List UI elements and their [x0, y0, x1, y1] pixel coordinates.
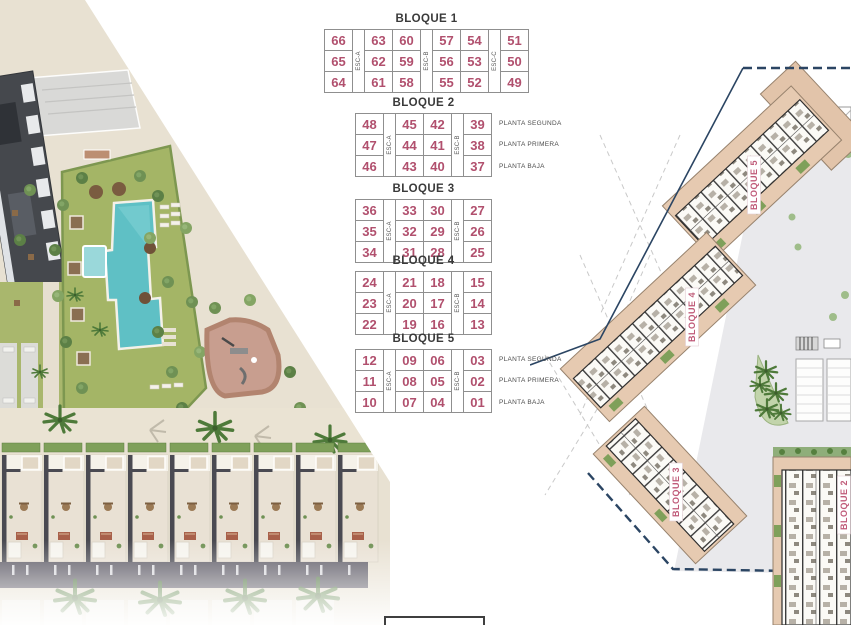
unit-number-cell: 61 — [365, 72, 393, 93]
unit-number-cell: 59 — [393, 51, 421, 72]
staircase-label: ESC-B — [455, 221, 461, 240]
unit-number-cell: 04 — [424, 392, 452, 413]
staircase-column: ESC-B — [452, 350, 464, 413]
unit-number-cell: 26 — [464, 221, 492, 242]
unit-number-cell: 32 — [396, 221, 424, 242]
staircase-column: ESC-B — [452, 200, 464, 263]
unit-number-cell: 11 — [356, 371, 384, 392]
staircase-label: ESC-A — [356, 51, 362, 70]
bloque-3-label: BLOQUE 3 — [670, 463, 683, 521]
unit-number-cell: 56 — [433, 51, 461, 72]
bloque-5-section: BLOQUE 5 12ESC-A0906ESC-B031108050210070… — [355, 333, 492, 413]
unit-number-cell: 13 — [464, 314, 492, 335]
bloque-2-table: 48ESC-A4542ESC-B394744413846434037 — [355, 113, 492, 177]
staircase-column: ESC-A — [384, 114, 396, 177]
unit-number-cell: 39 — [464, 114, 492, 135]
unit-number-cell: 52 — [461, 72, 489, 93]
bloque-title: BLOQUE 5 — [355, 333, 492, 346]
bloque-title: BLOQUE 3 — [355, 183, 492, 196]
townhouse-hedges — [2, 443, 376, 452]
site-plan-illustration: BLOQUE 5 BLOQUE 4 BLOQUE 3 BLOQUE 2 — [530, 55, 851, 625]
staircase-label: ESC-B — [424, 51, 430, 70]
page: BLOQUE 5 BLOQUE 4 BLOQUE 3 BLOQUE 2 BLOQ… — [0, 0, 851, 625]
bloque-5-table: 12ESC-A0906ESC-B031108050210070401 — [355, 349, 492, 413]
unit-number-cell: 03 — [464, 350, 492, 371]
unit-number-cell: 54 — [461, 30, 489, 51]
unit-number-cell: 40 — [424, 156, 452, 177]
unit-number-cell: 15 — [464, 272, 492, 293]
staircase-column: ESC-B — [452, 272, 464, 335]
staircase-column: ESC-A — [353, 30, 365, 93]
unit-number-cell: 46 — [356, 156, 384, 177]
unit-number-cell: 10 — [356, 392, 384, 413]
staircase-label: ESC-B — [455, 371, 461, 390]
unit-number-cell: 44 — [396, 135, 424, 156]
unit-number-cell: 51 — [501, 30, 529, 51]
unit-number-cell: 43 — [396, 156, 424, 177]
staircase-label: ESC-A — [387, 135, 393, 154]
unit-number-cell: 12 — [356, 350, 384, 371]
unit-number-cell: 14 — [464, 293, 492, 314]
unit-number-cell: 65 — [325, 51, 353, 72]
bloque-1-section: BLOQUE 1 66ESC-A6360ESC-B5754ESC-C516562… — [324, 13, 529, 93]
unit-number-cell: 55 — [433, 72, 461, 93]
unit-number-cell: 09 — [396, 350, 424, 371]
staircase-label: ESC-A — [387, 371, 393, 390]
staircase-column: ESC-A — [384, 350, 396, 413]
unit-number-cell: 58 — [393, 72, 421, 93]
cutoff-table-box — [384, 616, 485, 625]
bloque-4-table: 24ESC-A2118ESC-B152320171422191613 — [355, 271, 492, 335]
bloque-title: BLOQUE 4 — [355, 255, 492, 268]
bloque-2-section: BLOQUE 2 48ESC-A4542ESC-B394744413846434… — [355, 97, 492, 177]
unit-number-cell: 20 — [396, 293, 424, 314]
bloque-2-label: BLOQUE 2 — [838, 476, 851, 534]
canopy-roof — [28, 70, 140, 136]
playground — [207, 320, 279, 396]
staircase-column: ESC-A — [384, 200, 396, 263]
svg-text:BLOQUE 2: BLOQUE 2 — [839, 480, 849, 530]
unit-number-cell: 07 — [396, 392, 424, 413]
staircase-column: ESC-B — [421, 30, 433, 93]
unit-number-cell: 23 — [356, 293, 384, 314]
staircase-column: ESC-A — [384, 272, 396, 335]
unit-number-cell: 53 — [461, 51, 489, 72]
svg-text:BLOQUE 5: BLOQUE 5 — [749, 160, 759, 210]
unit-number-cell: 41 — [424, 135, 452, 156]
unit-number-cell: 33 — [396, 200, 424, 221]
unit-number-cell: 60 — [393, 30, 421, 51]
unit-number-cell: 47 — [356, 135, 384, 156]
bloque-5-label: BLOQUE 5 — [748, 156, 761, 214]
planta-label: PLANTA SEGUNDA — [499, 113, 562, 134]
bloque-title: BLOQUE 2 — [355, 97, 492, 110]
staircase-label: ESC-A — [387, 221, 393, 240]
bloque-3-table: 36ESC-A3330ESC-B273532292634312825 — [355, 199, 492, 263]
staircase-label: ESC-C — [492, 51, 498, 71]
unit-number-cell: 45 — [396, 114, 424, 135]
unit-number-cell: 30 — [424, 200, 452, 221]
unit-number-cell: 05 — [424, 371, 452, 392]
planta-label: PLANTA PRIMERA — [499, 134, 562, 155]
unit-number-cell: 50 — [501, 51, 529, 72]
unit-number-cell: 18 — [424, 272, 452, 293]
unit-number-cell: 06 — [424, 350, 452, 371]
bottom-fade — [0, 540, 400, 625]
staircase-label: ESC-B — [455, 293, 461, 312]
unit-number-cell: 24 — [356, 272, 384, 293]
unit-number-cell: 27 — [464, 200, 492, 221]
unit-number-cell: 36 — [356, 200, 384, 221]
unit-number-cell: 38 — [464, 135, 492, 156]
unit-number-cell: 21 — [396, 272, 424, 293]
planta-label: PLANTA PRIMERA — [499, 370, 562, 391]
planta-label: PLANTA BAJA — [499, 156, 562, 177]
unit-number-cell: 57 — [433, 30, 461, 51]
entrance-sign — [84, 150, 110, 159]
planta-label: PLANTA BAJA — [499, 392, 562, 413]
planta-labels: PLANTA SEGUNDAPLANTA PRIMERAPLANTA BAJA — [499, 113, 562, 177]
unit-number-cell: 29 — [424, 221, 452, 242]
unit-number-cell: 64 — [325, 72, 353, 93]
staircase-label: ESC-A — [387, 293, 393, 312]
bloque-4-section: BLOQUE 4 24ESC-A2118ESC-B152320171422191… — [355, 255, 492, 335]
bloque-2-building — [773, 447, 851, 625]
planta-labels: PLANTA SEGUNDAPLANTA PRIMERAPLANTA BAJA — [499, 349, 562, 413]
unit-number-cell: 17 — [424, 293, 452, 314]
staircase-label: ESC-B — [455, 135, 461, 154]
unit-number-cell: 63 — [365, 30, 393, 51]
unit-number-cell: 49 — [501, 72, 529, 93]
staircase-column: ESC-B — [452, 114, 464, 177]
unit-number-cell: 62 — [365, 51, 393, 72]
bloque-1-table: 66ESC-A6360ESC-B5754ESC-C516562595653506… — [324, 29, 529, 93]
unit-number-cell: 22 — [356, 314, 384, 335]
svg-text:BLOQUE 4: BLOQUE 4 — [687, 292, 697, 342]
unit-number-cell: 48 — [356, 114, 384, 135]
bloque-3-section: BLOQUE 3 36ESC-A3330ESC-B273532292634312… — [355, 183, 492, 263]
unit-number-cell: 42 — [424, 114, 452, 135]
planta-label: PLANTA SEGUNDA — [499, 349, 562, 370]
svg-text:BLOQUE 3: BLOQUE 3 — [671, 467, 681, 517]
unit-number-cell: 66 — [325, 30, 353, 51]
unit-number-cell: 16 — [424, 314, 452, 335]
staircase-column: ESC-C — [489, 30, 501, 93]
bloque-title: BLOQUE 1 — [324, 13, 529, 26]
unit-number-cell: 02 — [464, 371, 492, 392]
unit-number-cell: 37 — [464, 156, 492, 177]
bloque-4-label: BLOQUE 4 — [686, 288, 699, 346]
kids-pool — [83, 246, 106, 277]
unit-number-cell: 35 — [356, 221, 384, 242]
unit-number-cell: 08 — [396, 371, 424, 392]
unit-number-cell: 19 — [396, 314, 424, 335]
aerial-render-illustration — [0, 0, 400, 625]
unit-number-cell: 01 — [464, 392, 492, 413]
